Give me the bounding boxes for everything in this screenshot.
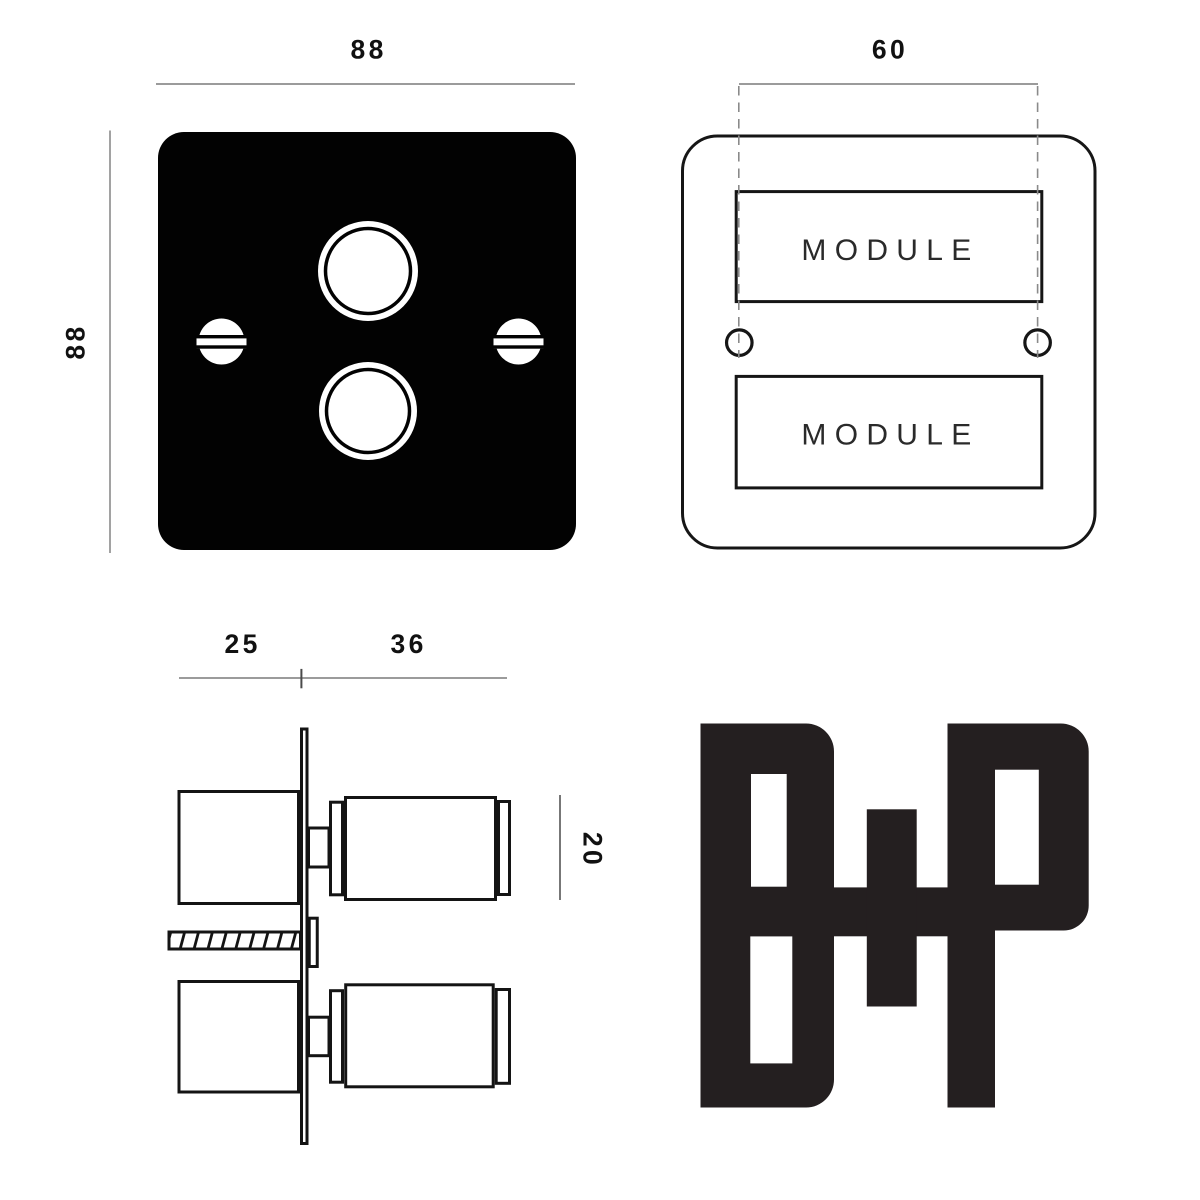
svg-text:36: 36 [391,629,427,659]
svg-text:88: 88 [61,323,91,359]
svg-text:MODULE: MODULE [801,419,979,452]
svg-text:88: 88 [351,34,387,64]
svg-text:MODULE: MODULE [801,234,979,267]
svg-text:25: 25 [225,629,261,659]
svg-text:20: 20 [578,832,608,868]
svg-text:60: 60 [872,35,908,65]
